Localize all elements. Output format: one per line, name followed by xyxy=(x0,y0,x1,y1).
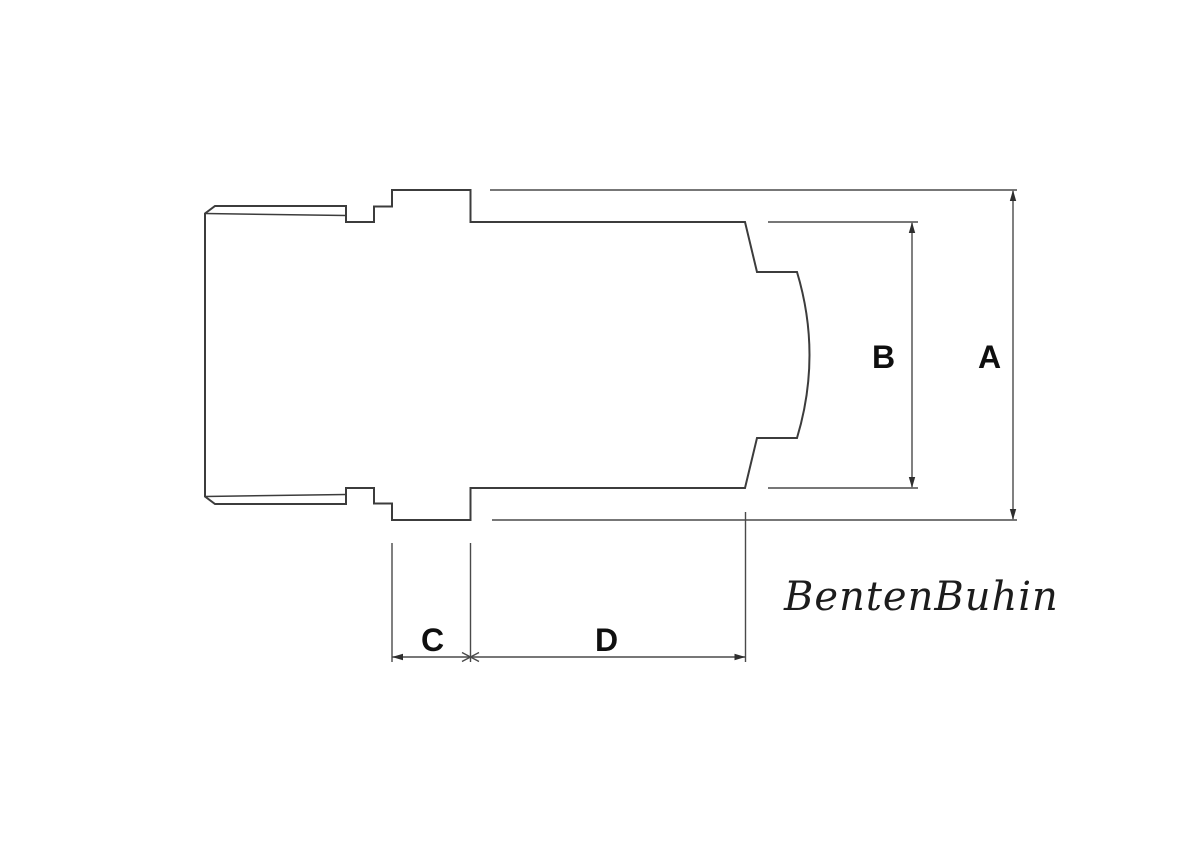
chamfer-edge-line-bottom xyxy=(205,495,346,497)
dim-b-arrow-up-icon xyxy=(909,222,915,233)
dim-c-label: C xyxy=(421,622,444,658)
dimension-b: B xyxy=(768,222,918,488)
part-outline xyxy=(205,190,810,520)
technical-drawing-canvas: A B C D BentenBuhin xyxy=(0,0,1200,848)
watermark-text: BentenBuhin xyxy=(783,574,1059,620)
dim-b-label: B xyxy=(872,339,895,375)
dimension-a: A xyxy=(490,190,1017,520)
dim-a-arrow-up-icon xyxy=(1010,190,1016,201)
part-view xyxy=(205,190,810,520)
chamfer-edge-line-top xyxy=(205,214,346,216)
drawing-sheet: A B C D BentenBuhin xyxy=(0,0,1200,848)
dim-c-arrow-left-icon xyxy=(392,654,403,660)
dim-a-arrow-down-icon xyxy=(1010,509,1016,520)
dimension-c-d: C D xyxy=(392,512,746,662)
dim-d-label: D xyxy=(595,622,618,658)
dim-d-arrow-right-icon xyxy=(735,654,746,660)
dim-a-label: A xyxy=(978,339,1001,375)
dim-b-arrow-down-icon xyxy=(909,477,915,488)
